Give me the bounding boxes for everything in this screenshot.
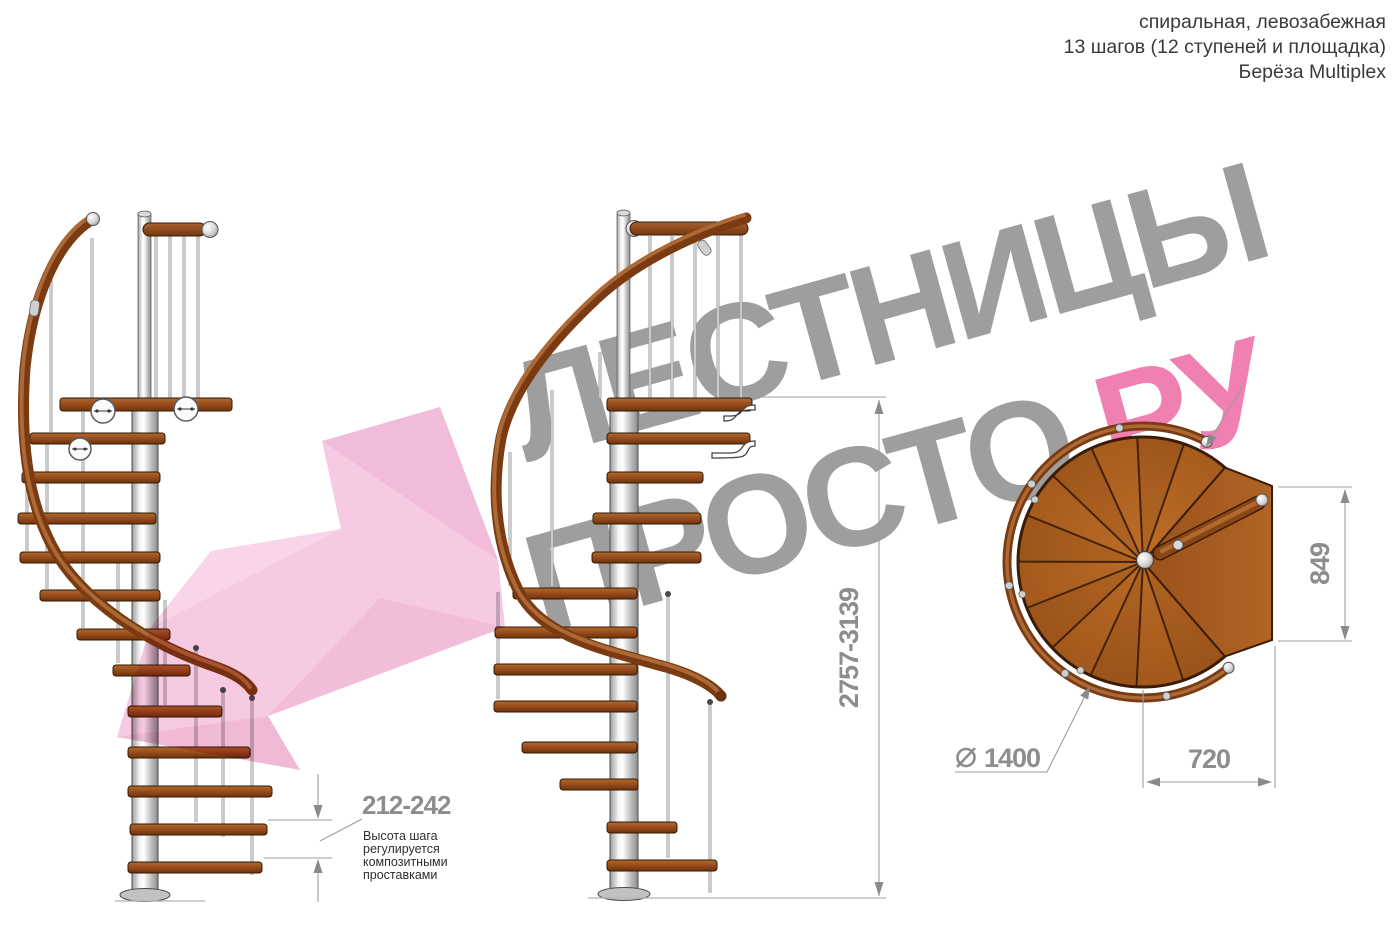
drawing-page: ЛЕСТНИЦЫ ПРОСТО.РУ [0, 0, 1400, 936]
title-line-material: Берёза Multiplex [1064, 60, 1386, 85]
center-landing-slab [607, 398, 752, 411]
svg-text:Высота шага: Высота шага [363, 829, 438, 843]
title-block: спиральная, левозабежная 13 шагов (12 ст… [1064, 10, 1386, 85]
staircase-drawing: ЛЕСТНИЦЫ ПРОСТО.РУ [0, 0, 1400, 936]
title-line-steps: 13 шагов (12 ступеней и площадка) [1064, 35, 1386, 60]
left-pole-base [120, 889, 170, 902]
svg-text:регулируется: регулируется [363, 842, 440, 856]
total-height-value: 2757-3139 [834, 587, 864, 708]
diameter-icon [957, 748, 975, 767]
arrow-watermark [117, 407, 505, 770]
left-top-rail [143, 222, 218, 238]
plan-width-value: 849 [1305, 542, 1335, 585]
step-height-value: 212-242 [362, 790, 451, 820]
svg-text:проставками: проставками [363, 868, 437, 882]
dimension-diameter: 1400 [955, 686, 1090, 773]
plan-depth-value: 720 [1188, 744, 1230, 774]
left-top-post [138, 214, 151, 400]
step-height-note: Высота шага регулируется композитными пр… [363, 829, 448, 882]
svg-text:композитными: композитными [363, 855, 448, 869]
dimension-step-height: 212-242 Высота шага регулируется компози… [264, 774, 451, 902]
center-top-post [617, 213, 630, 400]
diameter-value: 1400 [984, 743, 1040, 773]
plan-center-pole [1137, 552, 1154, 569]
dimension-plan-width: 849 [1278, 487, 1352, 641]
left-landing-slab [60, 398, 232, 411]
title-line-type: спиральная, левозабежная [1064, 10, 1386, 35]
